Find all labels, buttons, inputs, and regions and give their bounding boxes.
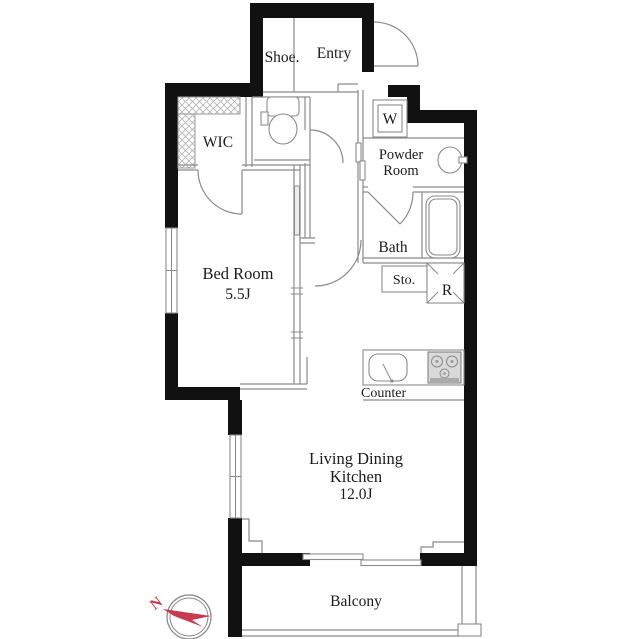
storage-label: Sto. xyxy=(393,273,415,288)
refrigerator-label: R xyxy=(442,282,453,299)
bath-label: Bath xyxy=(378,239,408,256)
washer-label: W xyxy=(383,111,398,128)
powder-room-label-1: Powder xyxy=(379,147,423,163)
ldk-side-window xyxy=(230,435,241,518)
wic-label: WIC xyxy=(203,134,233,151)
ldk-label-1: Living Dining xyxy=(309,449,403,468)
stove-icon xyxy=(428,352,461,383)
toilet-icon xyxy=(261,97,299,144)
toilet-door-arc xyxy=(310,130,343,163)
floor-plan: N Shoe. Entry WIC W Powder Room Bath Sto… xyxy=(0,0,640,639)
kitchen-sink-icon xyxy=(369,354,407,383)
sliding-panel xyxy=(295,186,300,235)
bedroom-label: Bed Room xyxy=(202,264,273,283)
powder-room-label-2: Room xyxy=(383,163,419,179)
powder-room-sliding-door xyxy=(356,143,365,180)
wic-door-arc xyxy=(198,170,242,214)
bathtub-icon xyxy=(426,196,460,258)
entry-door-arc xyxy=(374,22,418,66)
bedroom-window xyxy=(166,228,177,313)
ldk-area: 12.0J xyxy=(339,486,372,503)
bedroom-area: 5.5J xyxy=(225,286,250,303)
toilet-room xyxy=(254,97,343,163)
entry-label: Entry xyxy=(317,45,352,62)
counter-label: Counter xyxy=(361,386,406,401)
balcony-corner-post xyxy=(458,624,481,636)
floor-plan-drawing: N Shoe. Entry WIC W Powder Room Bath Sto… xyxy=(0,0,640,639)
bathroom-sink-icon xyxy=(438,147,467,173)
ldk-label-2: Kitchen xyxy=(330,467,382,486)
balcony-sliding-window xyxy=(303,554,421,566)
ldk-corner-steps xyxy=(242,519,464,553)
bath-door-arc xyxy=(368,192,413,224)
compass-north-label: N xyxy=(147,594,166,613)
compass-icon: N xyxy=(147,594,211,639)
balcony-label: Balcony xyxy=(330,593,382,610)
shoe-label: Shoe. xyxy=(265,49,300,66)
ldk-door-arc xyxy=(315,240,361,286)
